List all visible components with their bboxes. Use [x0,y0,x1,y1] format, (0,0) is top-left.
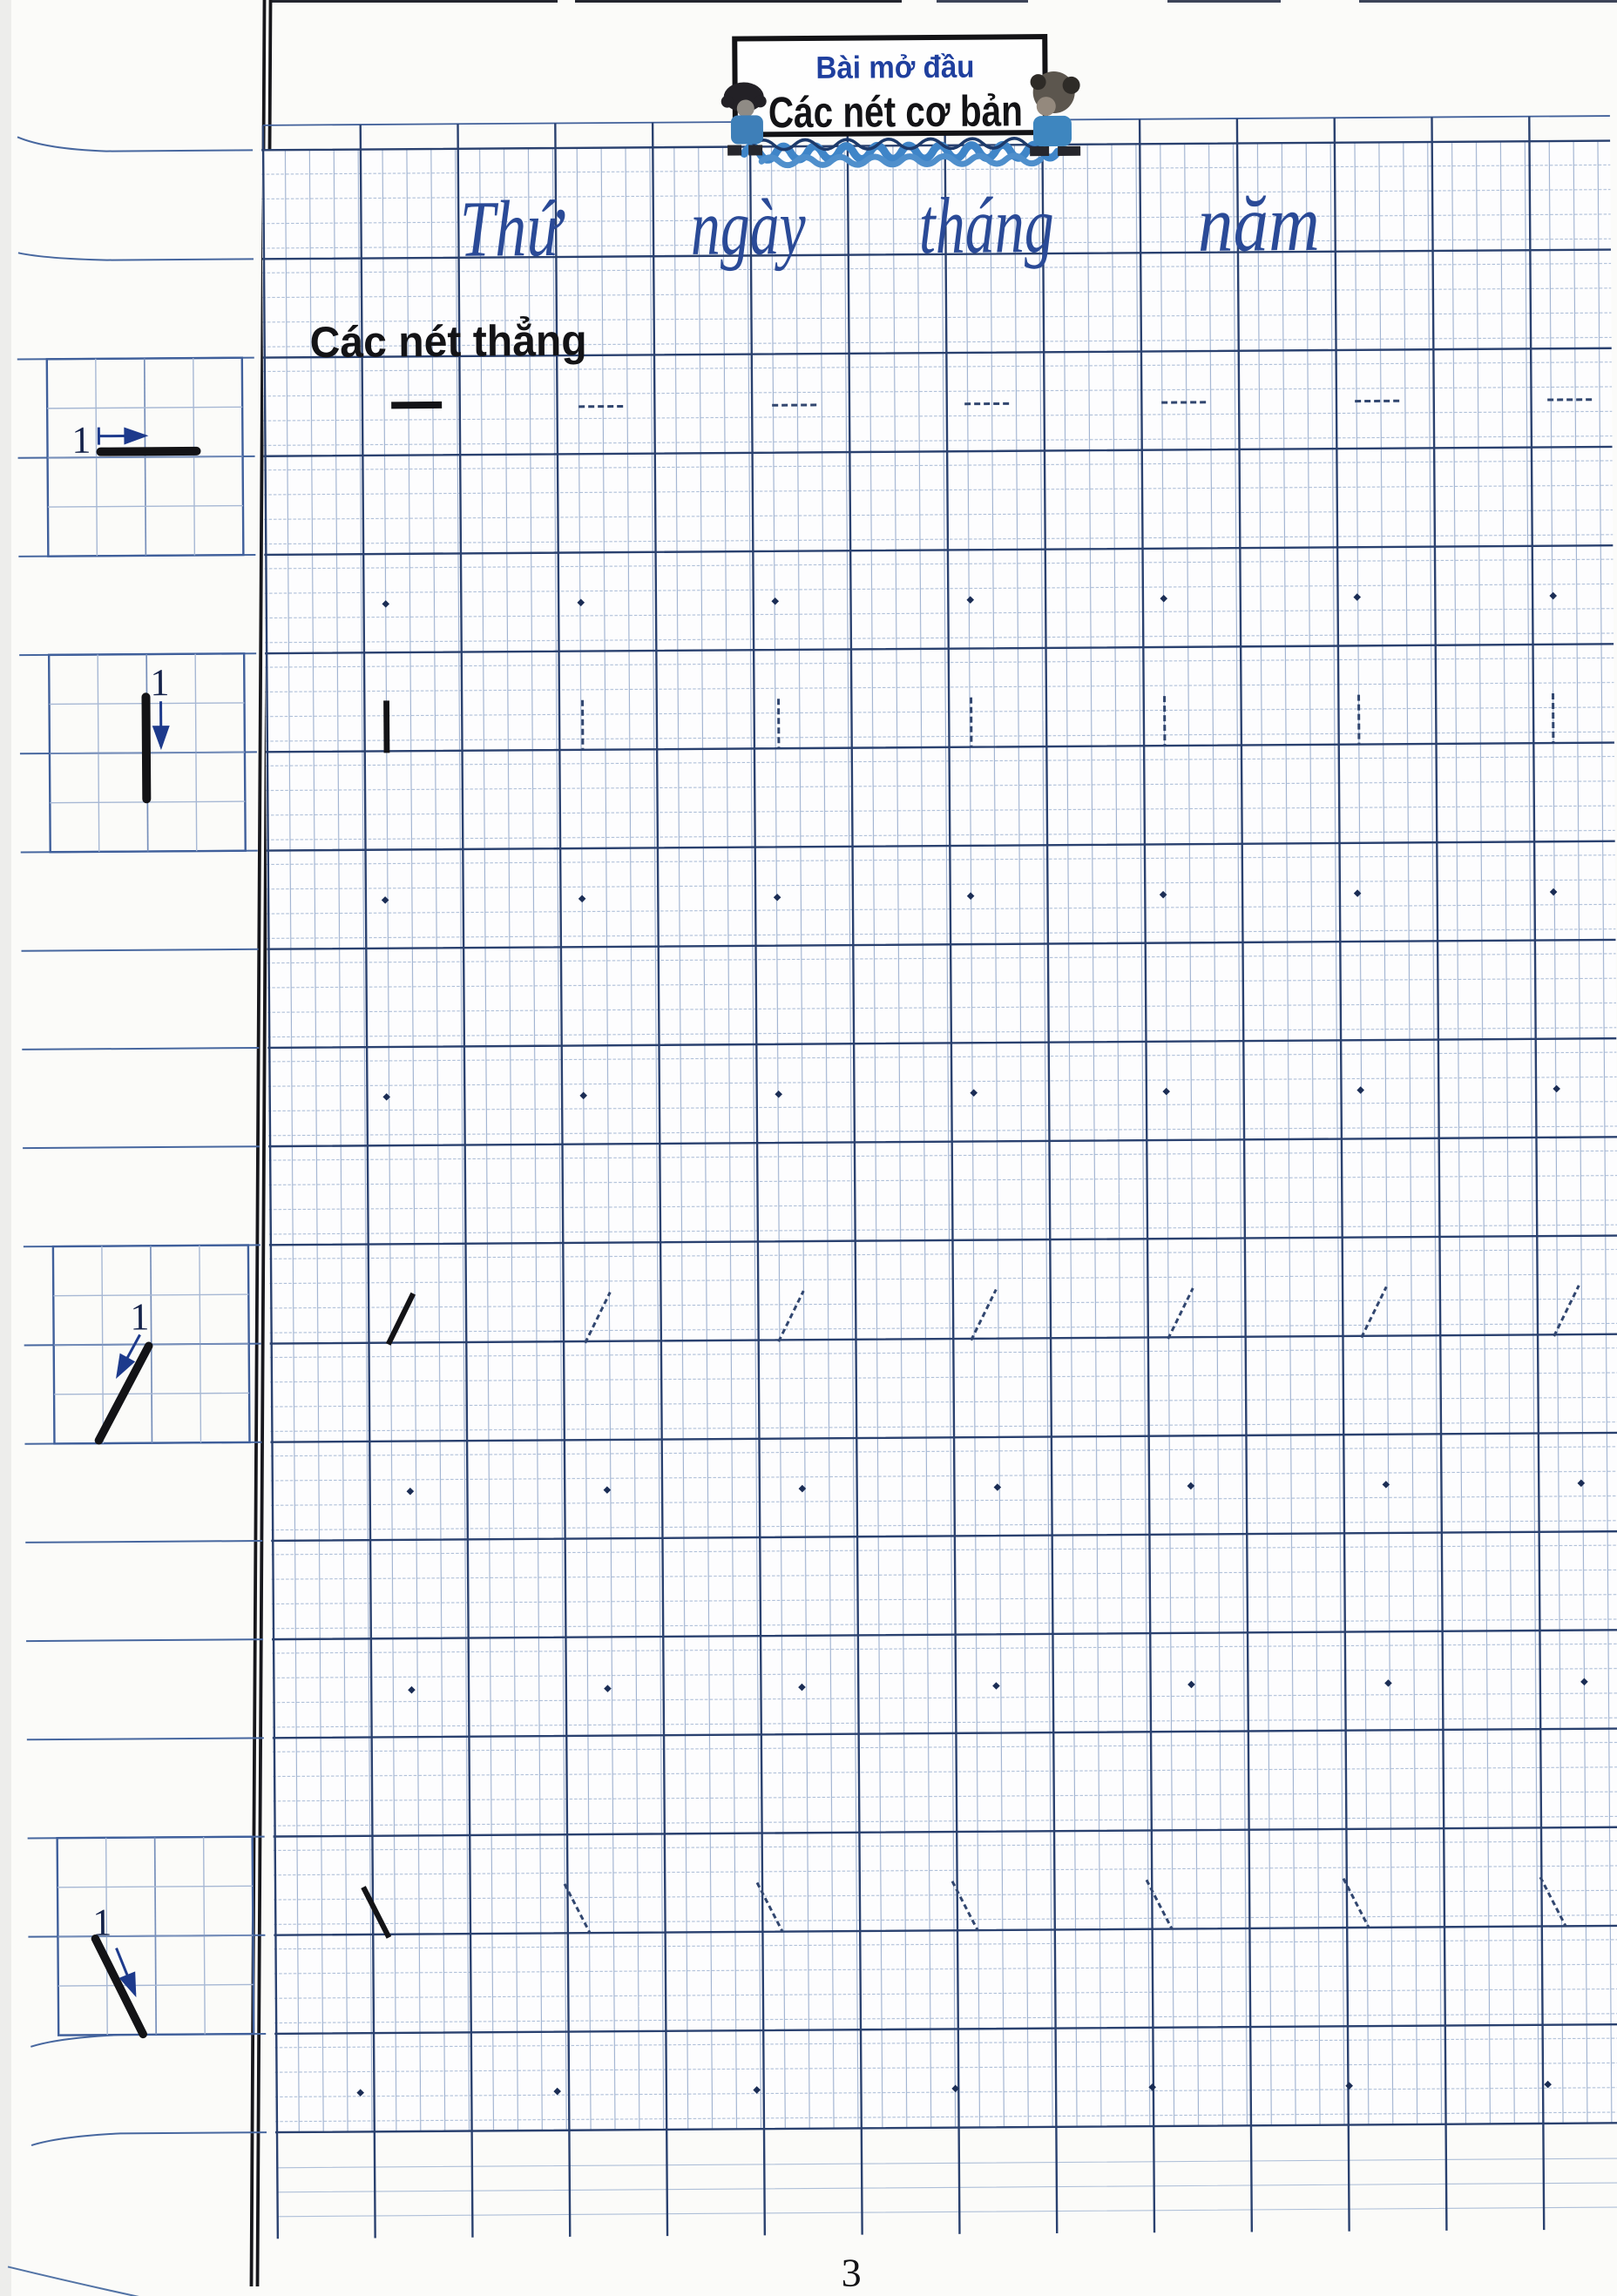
svg-text:1: 1 [71,419,91,462]
svg-text:năm: năm [1197,179,1320,268]
svg-text:Các nét thẳng: Các nét thẳng [309,315,586,367]
svg-text:Các nét cơ bản: Các nét cơ bản [768,86,1023,137]
svg-text:1: 1 [130,1295,149,1338]
svg-text:1: 1 [92,1901,112,1944]
svg-text:Bài mở đầu: Bài mở đầu [815,49,974,85]
svg-text:tháng: tháng [918,180,1054,270]
svg-text:3: 3 [841,2251,861,2295]
svg-text:1: 1 [150,661,169,704]
svg-text:ngày: ngày [690,182,806,272]
svg-text:Thứ: Thứ [459,184,565,273]
